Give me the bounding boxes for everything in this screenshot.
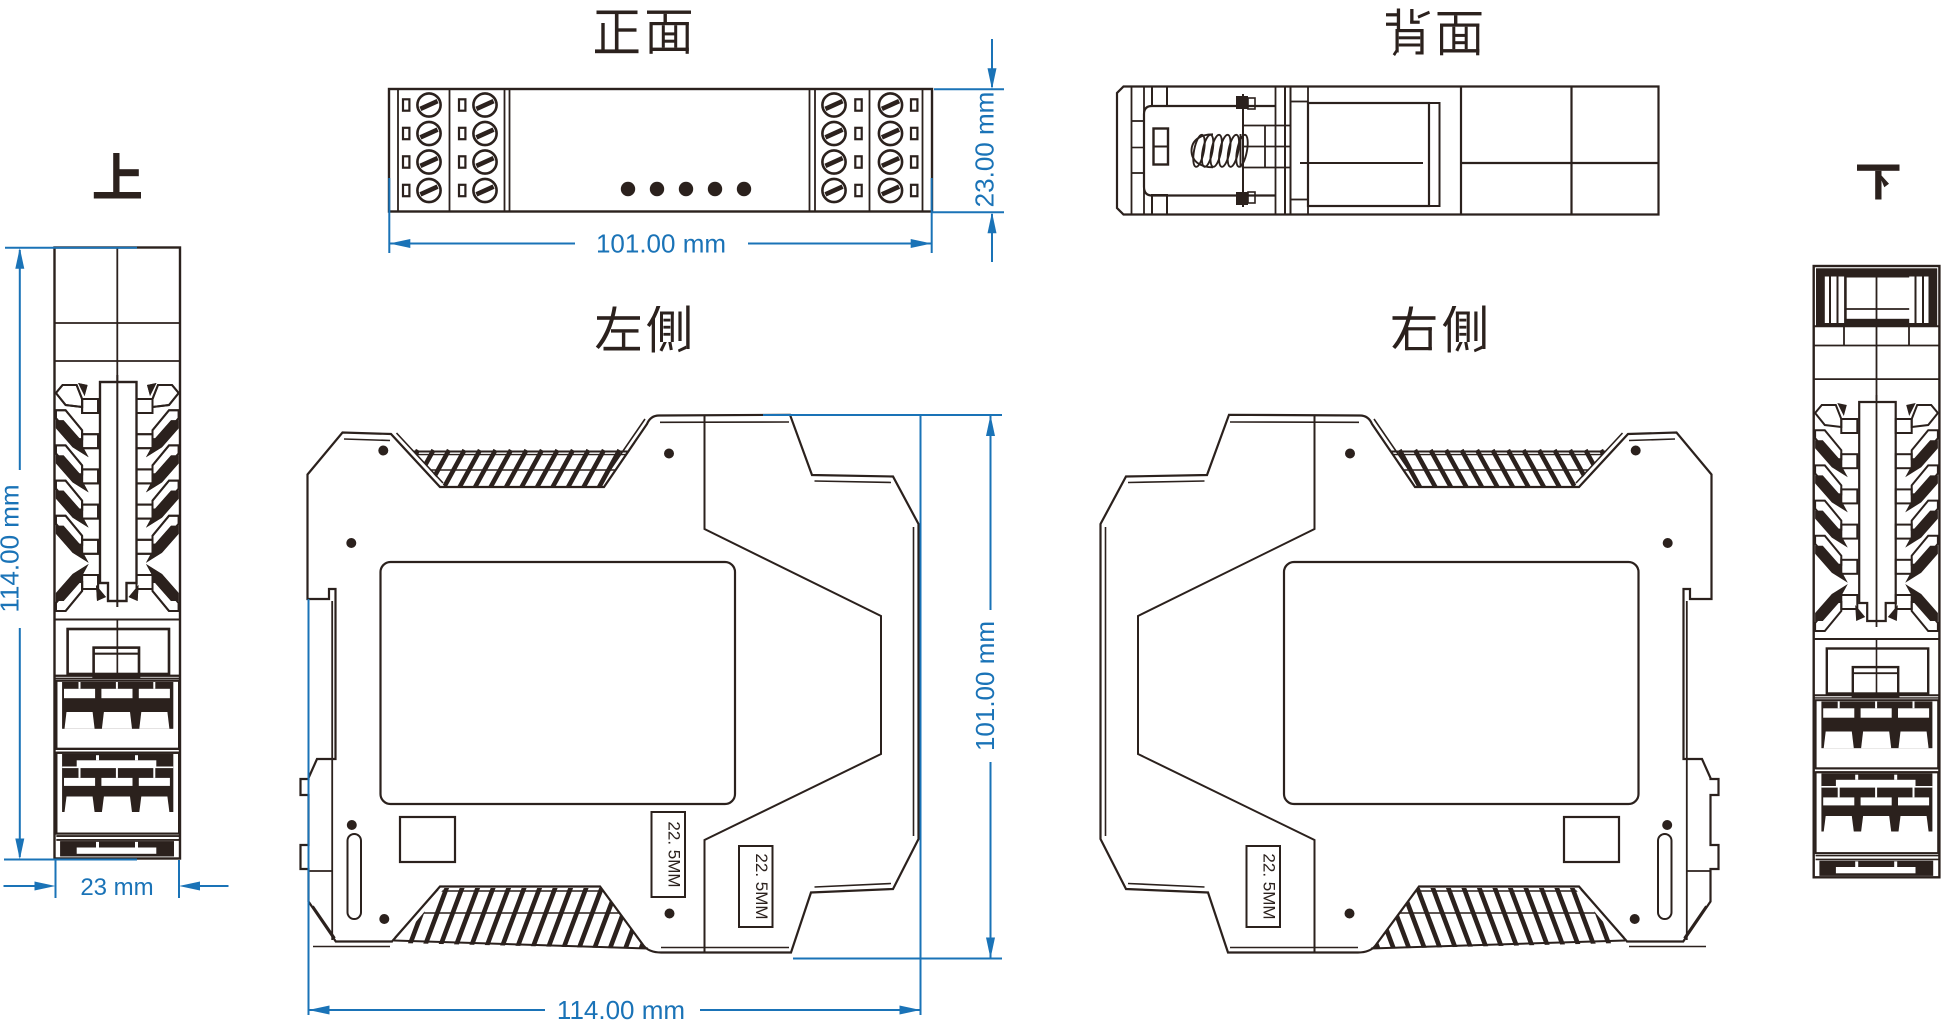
svg-text:23.00 mm: 23.00 mm [970, 92, 1000, 208]
svg-text:22. 5MM: 22. 5MM [752, 853, 771, 919]
svg-text:22. 5MM: 22. 5MM [664, 821, 683, 887]
svg-text:114.00 mm: 114.00 mm [557, 995, 685, 1025]
svg-text:101.00 mm: 101.00 mm [596, 229, 726, 259]
svg-text:22. 5MM: 22. 5MM [1259, 853, 1278, 919]
svg-text:101.00 mm: 101.00 mm [970, 621, 1000, 751]
svg-text:114.00 mm: 114.00 mm [0, 484, 25, 612]
svg-text:23 mm: 23 mm [80, 874, 153, 901]
